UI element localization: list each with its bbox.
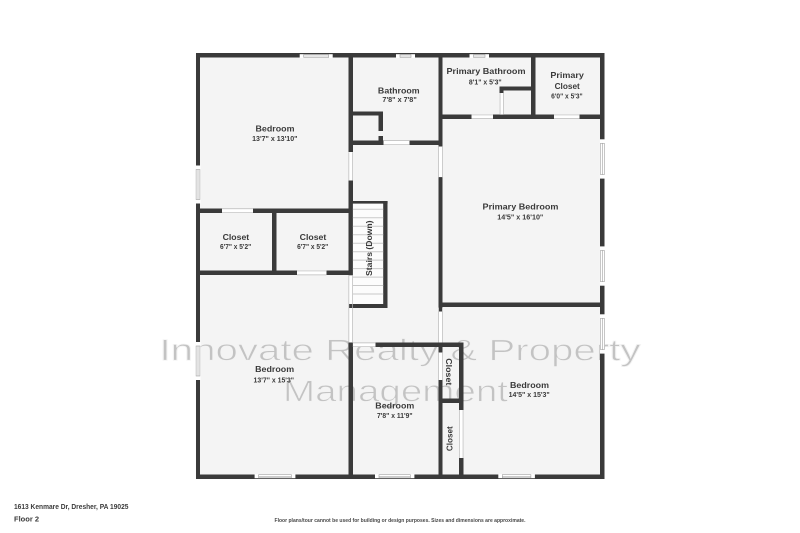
svg-text:7'8" x 11'9": 7'8" x 11'9" (377, 413, 413, 420)
svg-text:Innovate Realty & Property: Innovate Realty & Property (159, 334, 640, 367)
svg-text:Floor 2: Floor 2 (14, 514, 39, 523)
svg-text:Bedroom: Bedroom (375, 401, 414, 411)
svg-text:13'7" x 15'3": 13'7" x 15'3" (254, 377, 295, 384)
svg-text:Primary Bathroom: Primary Bathroom (447, 66, 526, 76)
svg-text:Primary: Primary (550, 70, 584, 80)
svg-text:6'7" x 5'2": 6'7" x 5'2" (297, 244, 328, 251)
svg-text:Closet: Closet (445, 426, 455, 451)
svg-text:Closet: Closet (555, 81, 580, 91)
svg-text:8'1" x 5'3": 8'1" x 5'3" (469, 80, 502, 87)
svg-text:14'5" x 16'10": 14'5" x 16'10" (497, 214, 543, 221)
svg-text:Closet: Closet (444, 358, 454, 385)
svg-text:Closet: Closet (300, 232, 327, 242)
svg-text:14'5" x 15'3": 14'5" x 15'3" (509, 392, 550, 399)
svg-text:Floor plans/tour cannot be use: Floor plans/tour cannot be used for buil… (274, 518, 525, 524)
svg-text:13'7" x 13'10": 13'7" x 13'10" (252, 136, 297, 143)
svg-text:Bathroom: Bathroom (378, 85, 420, 95)
svg-text:6'0" x 5'3": 6'0" x 5'3" (551, 93, 583, 100)
svg-text:1613 Kenmare Dr, Dresher, PA 1: 1613 Kenmare Dr, Dresher, PA 19025 (14, 502, 128, 511)
svg-text:Primary Bedroom: Primary Bedroom (483, 201, 559, 211)
svg-text:Bedroom: Bedroom (255, 364, 294, 374)
svg-text:Stairs (Down): Stairs (Down) (364, 220, 374, 276)
svg-text:Closet: Closet (223, 232, 250, 242)
svg-text:6'7" x 5'2": 6'7" x 5'2" (220, 244, 251, 251)
svg-text:7'8" x 7'8": 7'8" x 7'8" (382, 97, 416, 104)
svg-text:Bedroom: Bedroom (510, 380, 549, 390)
svg-text:Bedroom: Bedroom (256, 124, 295, 134)
